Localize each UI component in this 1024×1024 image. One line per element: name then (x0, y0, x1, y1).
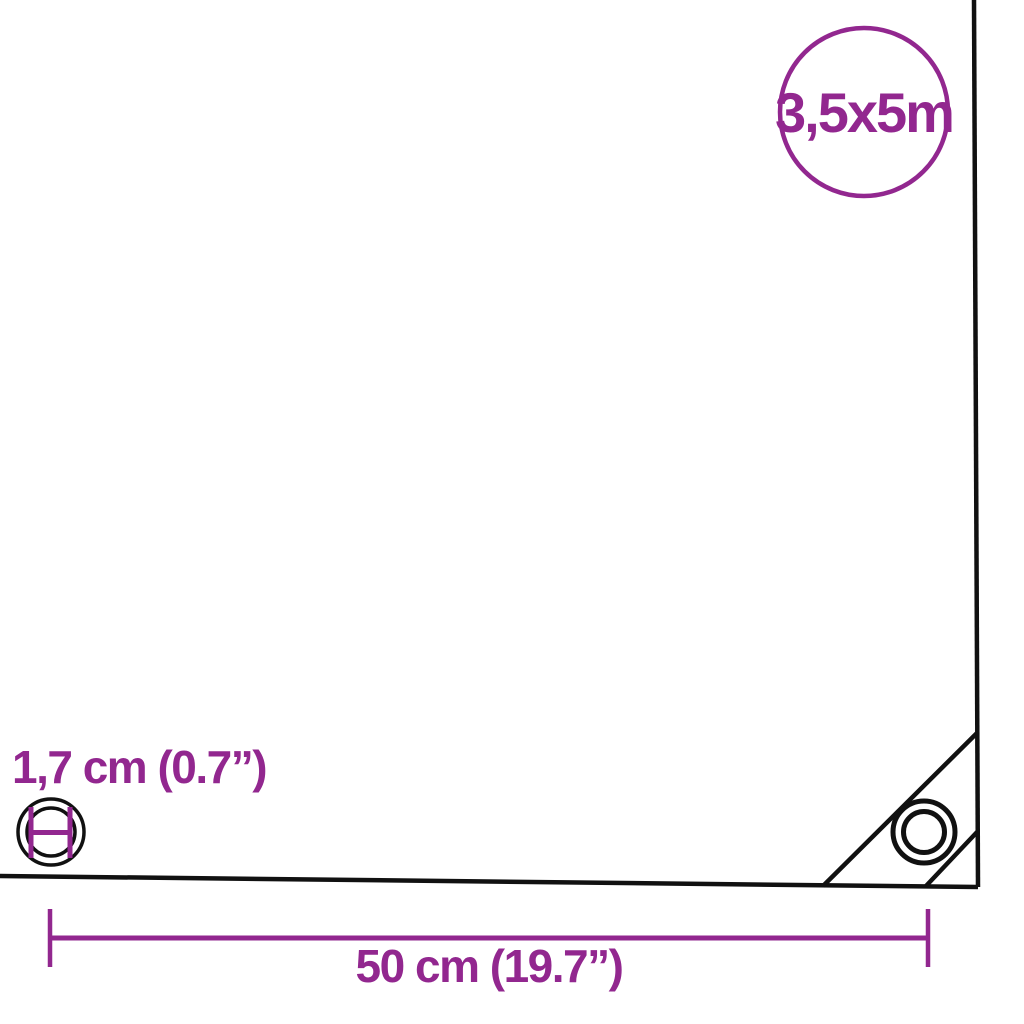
corner-grommet-inner-ring-icon (904, 812, 945, 853)
corner-reinforcement-icon (823, 732, 978, 886)
eyelet-diameter-label: 1,7 cm (0.7”) (12, 744, 266, 790)
eyelet-diameter-icon (18, 799, 84, 865)
tarp-right-edge-line (974, 0, 978, 887)
size-badge-label: 3,5x5m (780, 28, 948, 196)
tarpaulin-spec-diagram: 3,5x5m 1,7 cm (0.7”) 50 cm (19.7”) (0, 0, 1024, 1024)
grommet-spacing-label: 50 cm (19.7”) (50, 943, 928, 989)
